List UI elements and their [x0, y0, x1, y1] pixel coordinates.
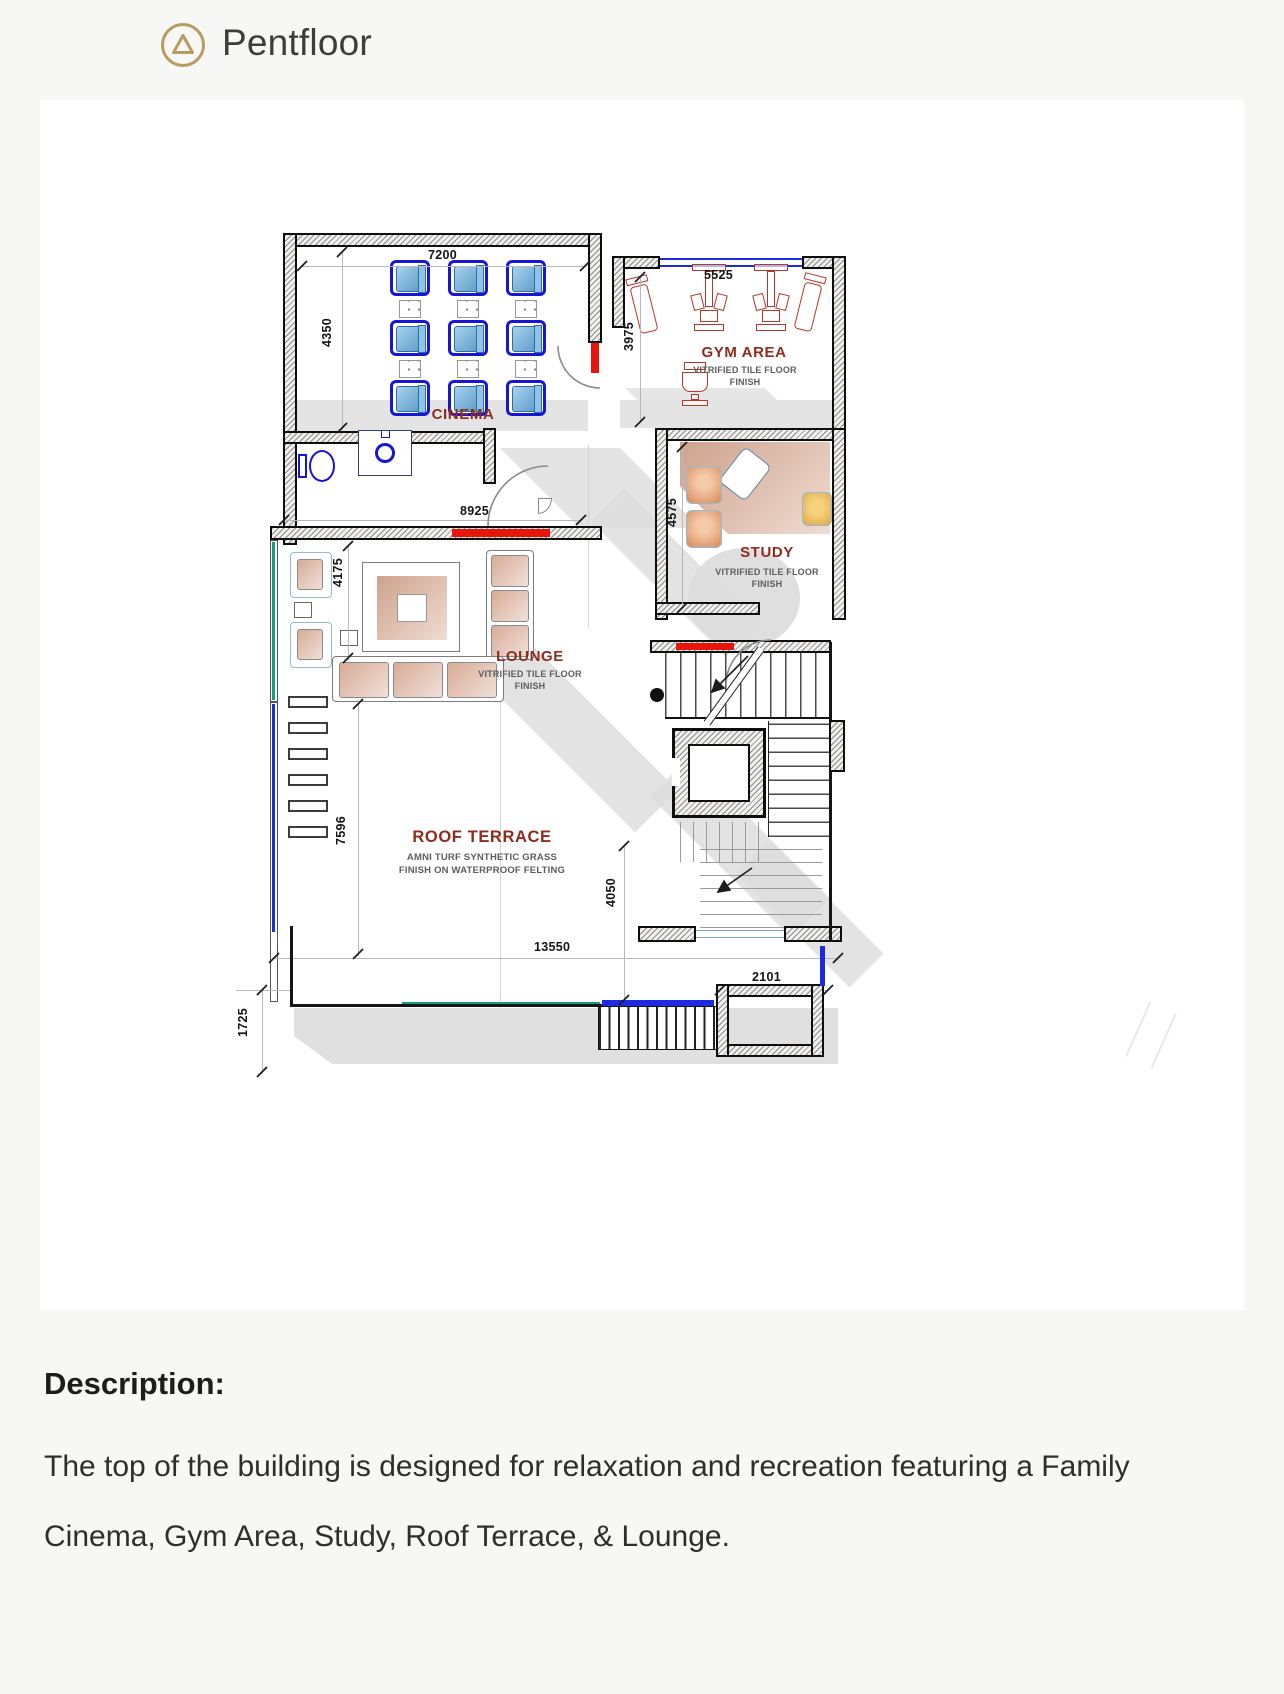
page-title: Pentfloor [222, 22, 372, 64]
floorplan: CINEMA 7200 4350 GYM AREA VITRIF [40, 100, 1244, 1215]
description-heading: Description: [44, 1366, 1224, 1402]
plan-annotations [40, 100, 1244, 1215]
floor-level-icon [160, 22, 206, 68]
door-arc [558, 346, 600, 388]
page-header: Pentfloor [160, 20, 960, 70]
stair-direction-arrows [712, 656, 752, 892]
description-body: The top of the building is designed for … [44, 1432, 1184, 1572]
door-arc [488, 466, 548, 526]
description-section: Description: The top of the building is … [44, 1366, 1224, 1572]
dimension-ticks [257, 247, 843, 1077]
floorplan-card: CINEMA 7200 4350 GYM AREA VITRIF [40, 100, 1244, 1310]
door-arc [726, 640, 771, 685]
